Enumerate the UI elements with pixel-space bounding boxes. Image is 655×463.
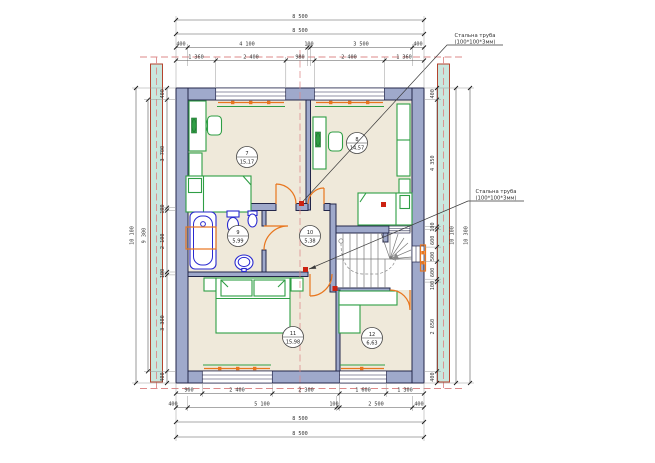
steel-column [333,286,338,291]
dim-label: 2 400 [243,55,259,61]
room-11-furniture [204,278,303,333]
room-number: 12 [369,332,375,338]
room-area: 15,98 [286,340,300,346]
annotation-text: (100*100*3мм) [454,40,495,46]
stair-top-wall [336,226,389,233]
dim-label: 2 400 [229,388,245,394]
window-bottom-1 [202,371,272,383]
dim-label: 1 360 [396,55,412,61]
bath-right-wall-lower [262,250,266,272]
dim-label: 4 100 [239,42,255,48]
window-top-2 [314,88,384,100]
room-label-12: 12 6,63 [362,328,383,349]
dim-label: 400 [168,402,177,408]
dim-label: 8 500 [292,14,308,20]
dim-label: 2 650 [430,319,436,335]
dim-label: 400 [430,372,436,381]
dim-label: 100 [430,222,436,231]
chair [329,132,343,151]
steel-column [381,202,386,207]
dim-label: 10 100 [130,226,136,245]
dim-label: 900 [184,388,193,394]
monitor-icon [316,134,320,146]
room-label-10: 10 5,38 [300,226,321,247]
window-top-1 [216,88,286,100]
dim-label: 100 [430,281,436,290]
room-number: 8 [355,137,358,143]
room-number: 7 [245,151,248,157]
dim-label: 8 500 [292,431,308,437]
pillow [189,179,202,193]
annotation-text: Стальна труба [475,189,516,195]
dim-label: 8 500 [292,28,308,34]
nightstand [204,278,216,291]
room-number: 10 [307,230,313,236]
wardrobe-shelf [339,291,397,305]
pillow [254,280,285,296]
dim-label: 980 [295,55,304,61]
dim-label: 100 [304,42,313,48]
dim-label: 400 [414,402,423,408]
dim-label: 3 300 [160,315,166,331]
dim-label: 2 500 [368,402,384,408]
steel-column [299,201,304,206]
dim-label: 1 300 [397,388,413,394]
dim-label: 100 [329,402,338,408]
dim-label: 400 [413,42,422,48]
dim-label: 400 [176,42,185,48]
wardrobe [339,305,360,333]
dim-label: 8 500 [292,416,308,422]
floor-plan-page: 7 15,17 8 14,57 9 5,99 10 5,38 11 15,98 … [0,0,655,463]
dim-label: 5 100 [254,402,270,408]
dim-label: 400 [430,89,436,98]
wall-right [412,88,424,383]
room-area: 15,17 [240,160,254,166]
dim-label: 500 [430,252,436,261]
dim-label: 600 [430,268,436,277]
toilet-tank [227,211,239,217]
hall-top-wall-right [324,204,330,211]
bidet-bowl [248,214,257,227]
bath-right-wall-upper [262,211,266,227]
window-bottom-2 [340,371,387,383]
dim-label: 2 400 [341,55,357,61]
pillow [400,196,410,209]
dim-label: 400 [160,89,166,98]
room-area: 5,38 [304,239,315,245]
room-label-11: 11 15,98 [283,327,304,348]
dim-label: 100 [160,204,166,213]
dim-label: 2 300 [298,388,314,394]
dim-label: 3 500 [353,42,369,48]
room-area: 5,99 [232,239,243,245]
room-number: 9 [236,230,239,236]
dim-label: 600 [430,236,436,245]
dim-label: 4 350 [430,155,436,171]
dim-label: 100 [160,269,166,278]
monitor-icon [192,120,196,132]
annotation-text: (100*100*3мм) [475,196,516,202]
room-label-7: 7 15,17 [237,147,258,168]
chair [208,116,222,135]
floor-plan-drawing: 7 15,17 8 14,57 9 5,99 10 5,38 11 15,98 … [0,0,655,463]
nightstand [291,278,303,291]
steel-column [303,267,308,272]
room-label-9: 9 5,99 [228,226,249,247]
dim-label: 3 700 [160,146,166,162]
stair-floor [336,232,412,290]
dim-label: 400 [160,372,166,381]
annotation-text: Стальна труба [454,33,495,39]
dim-label: 9 300 [142,228,148,244]
dim-label: 10 100 [450,226,456,245]
pillow [221,280,252,296]
room-area: 6,63 [366,341,377,347]
dim-label: 2 100 [160,233,166,249]
dim-label: 10 300 [464,226,470,245]
sink-tap [242,269,246,272]
cabinet [189,153,202,179]
room-number: 11 [290,331,296,337]
dim-label: 1 360 [188,55,204,61]
dim-label: 1 600 [355,388,371,394]
hall-bottom-wall [188,272,308,277]
